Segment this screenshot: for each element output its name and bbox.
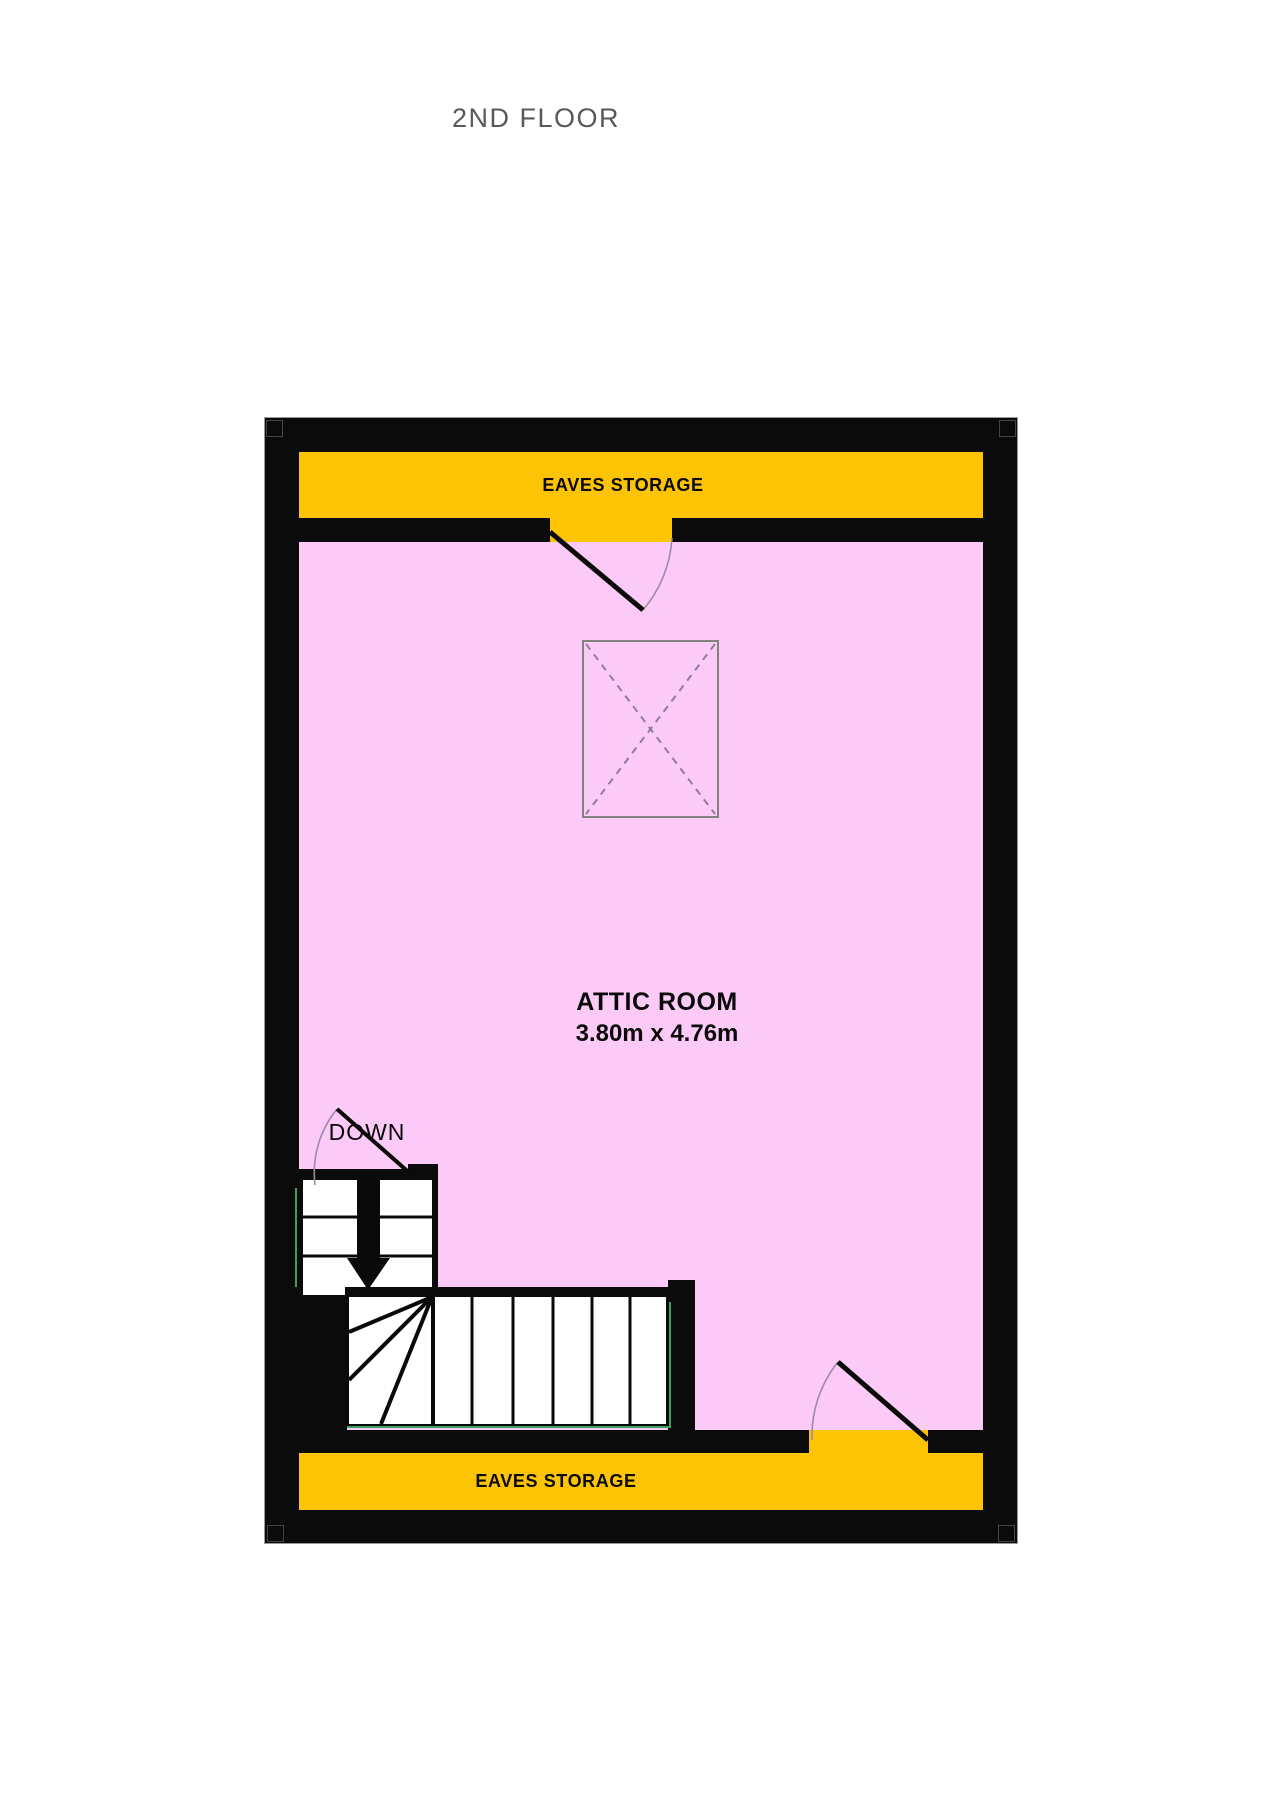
corner-notch-top-left — [266, 420, 283, 437]
eaves-storage-top-label: EAVES STORAGE — [299, 452, 983, 518]
room-label-group: ATTIC ROOM 3.80m x 4.76m — [497, 988, 817, 1048]
outer-wall-left — [265, 418, 299, 1543]
stairs-upper-right-border — [432, 1164, 438, 1300]
stairs-winder-treads — [347, 1295, 433, 1426]
stairs-lower-run — [433, 1295, 668, 1426]
stairs-upper-run — [303, 1180, 432, 1295]
eaves-storage-bottom-zone: EAVES STORAGE — [299, 1453, 983, 1510]
corner-notch-bottom-right — [998, 1525, 1015, 1542]
stairs-green-line-left — [295, 1188, 297, 1287]
stairwell-right-block — [668, 1280, 695, 1430]
bottom-door-opening — [809, 1430, 928, 1453]
floor-plan: EAVES STORAGE EAVES STORAGE — [265, 418, 1017, 1543]
eaves-storage-top-zone: EAVES STORAGE — [299, 452, 983, 518]
stairs-down-label: DOWN — [297, 1120, 437, 1144]
outer-wall-top — [265, 418, 1017, 452]
stairwell-corner-block — [299, 1295, 347, 1430]
stairs-green-line-bottom — [347, 1426, 671, 1428]
room-dimensions: 3.80m x 4.76m — [497, 1020, 817, 1048]
stairs-green-line-right — [669, 1302, 671, 1426]
outer-wall-bottom — [265, 1510, 1017, 1543]
inner-wall-bottom-right-segment — [928, 1430, 983, 1453]
room-name: ATTIC ROOM — [497, 988, 817, 1017]
inner-wall-top-right-segment — [672, 518, 983, 542]
skylight-window — [582, 640, 719, 818]
corner-notch-top-right — [999, 420, 1016, 437]
page-title: 2ND FLOOR — [380, 103, 692, 134]
inner-wall-bottom-left-segment — [299, 1430, 809, 1453]
skylight-cross-icon — [584, 642, 717, 816]
eaves-storage-bottom-label: EAVES STORAGE — [299, 1453, 983, 1510]
outer-wall-right — [983, 418, 1017, 1543]
corner-notch-bottom-left — [267, 1525, 284, 1542]
stairs-upper-left-border — [299, 1169, 303, 1295]
inner-wall-top-left-segment — [299, 518, 550, 542]
top-door-opening — [550, 518, 672, 542]
